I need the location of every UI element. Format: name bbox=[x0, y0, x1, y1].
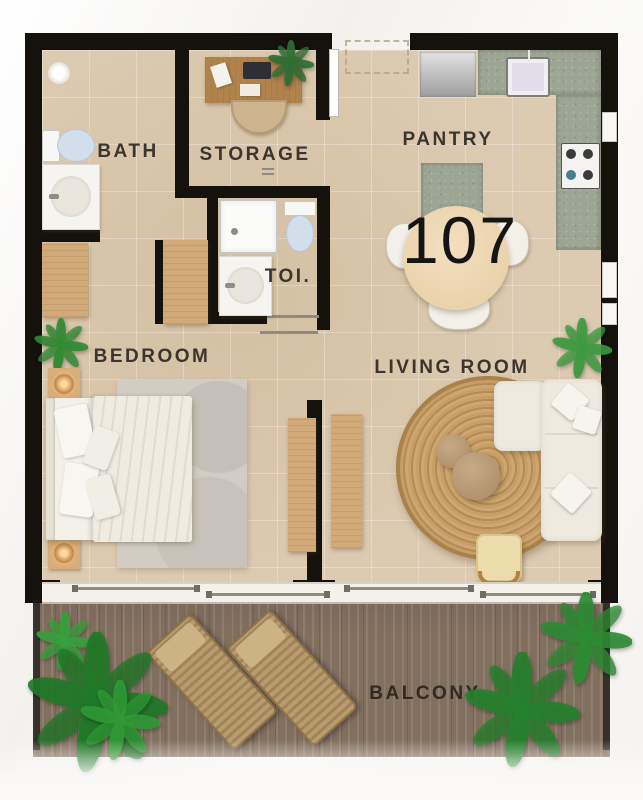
wall-entry-storage bbox=[316, 50, 330, 120]
pantry-label: PANTRY bbox=[403, 129, 494, 151]
living-room-label: LIVING ROOM bbox=[374, 357, 529, 379]
wall-bath-bottom bbox=[25, 230, 100, 242]
bath-ceiling-lamp bbox=[48, 62, 70, 84]
console-living-side bbox=[331, 414, 362, 548]
lamp-top bbox=[54, 374, 74, 394]
storage-door-mark2 bbox=[262, 173, 274, 175]
kitchen-sink bbox=[506, 57, 550, 97]
toi-toilet-tank bbox=[284, 201, 316, 216]
hall-sliding-door bbox=[260, 331, 318, 334]
bottom-fade bbox=[0, 740, 643, 800]
lamp-bottom bbox=[54, 543, 74, 563]
stove-icon bbox=[561, 143, 600, 189]
entry-door-leaf bbox=[330, 50, 338, 116]
balcony-sliding-doors bbox=[42, 582, 601, 604]
toi-sliding-door bbox=[267, 315, 319, 318]
storage-door-mark bbox=[262, 168, 274, 170]
desk-notebook bbox=[240, 84, 260, 96]
sofa-chaise bbox=[494, 381, 546, 451]
wall-left bbox=[25, 33, 42, 600]
storage-label: STORAGE bbox=[199, 144, 310, 166]
toi-toilet-bowl bbox=[286, 215, 314, 252]
console-bedroom-side bbox=[288, 418, 316, 552]
wall-toi-left bbox=[207, 198, 218, 320]
entry-mat-dashed-outline bbox=[345, 40, 409, 74]
bath-label: BATH bbox=[97, 141, 158, 163]
fridge bbox=[420, 52, 476, 97]
bedroom-label: BEDROOM bbox=[94, 346, 211, 368]
basket-chair bbox=[476, 534, 522, 582]
wall-bath-storage bbox=[175, 50, 189, 198]
storage-plant-icon bbox=[268, 40, 314, 86]
pouf-large bbox=[452, 452, 500, 500]
bedroom-plant-icon bbox=[34, 318, 88, 372]
shower bbox=[219, 199, 278, 254]
toi-label: TOI. bbox=[265, 266, 312, 288]
window-right-upper bbox=[602, 112, 617, 142]
bath-vanity-sink bbox=[42, 164, 100, 230]
laptop bbox=[243, 62, 271, 79]
bed bbox=[46, 398, 192, 540]
wall-toi-right bbox=[317, 186, 330, 330]
wardrobe-right bbox=[163, 240, 208, 324]
unit-number: 107 bbox=[402, 202, 518, 278]
window-right-mid bbox=[602, 262, 617, 298]
wall-storage-bottom bbox=[175, 186, 330, 198]
wardrobe-left bbox=[42, 243, 88, 317]
living-plant-icon bbox=[552, 318, 612, 378]
wall-top-right bbox=[410, 33, 618, 50]
floor-plan: BATH STORAGE PANTRY 107 TOI. BEDROOM bbox=[0, 0, 643, 800]
bath-toilet-bowl bbox=[57, 129, 95, 162]
